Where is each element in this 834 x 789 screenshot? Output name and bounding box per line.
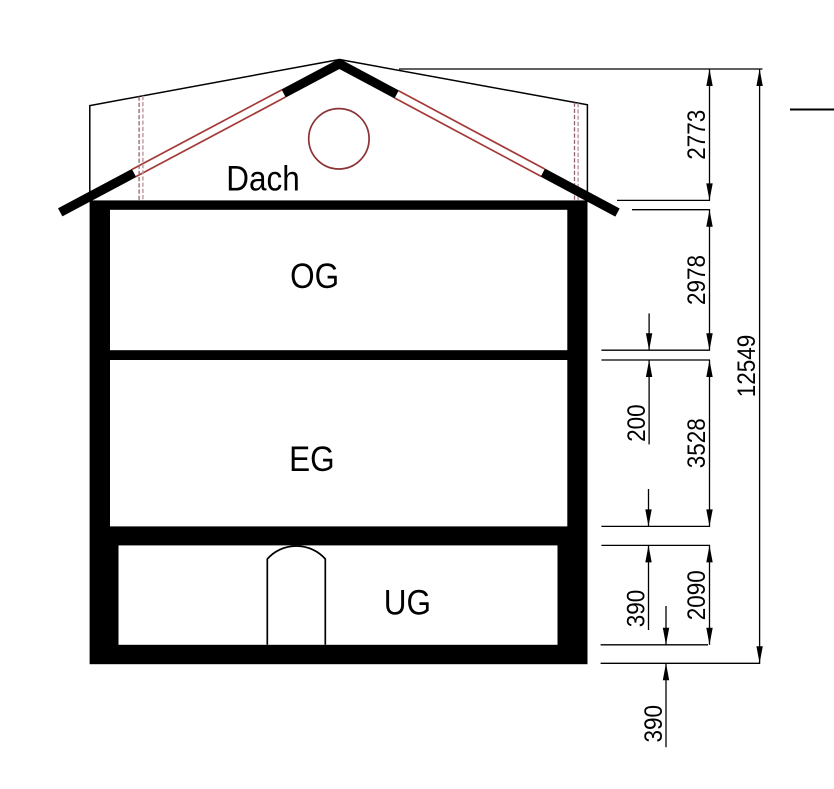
svg-text:12549: 12549 [733, 335, 761, 398]
svg-text:200: 200 [623, 404, 651, 442]
svg-text:390: 390 [622, 590, 650, 628]
svg-text:UG: UG [384, 584, 431, 623]
svg-text:OG: OG [290, 257, 339, 296]
svg-text:Dach: Dach [226, 160, 300, 199]
svg-text:3528: 3528 [683, 418, 711, 468]
svg-text:EG: EG [289, 441, 334, 480]
svg-text:2090: 2090 [683, 570, 711, 620]
svg-text:2773: 2773 [683, 110, 711, 160]
svg-text:2978: 2978 [683, 255, 711, 305]
svg-text:390: 390 [640, 705, 668, 743]
